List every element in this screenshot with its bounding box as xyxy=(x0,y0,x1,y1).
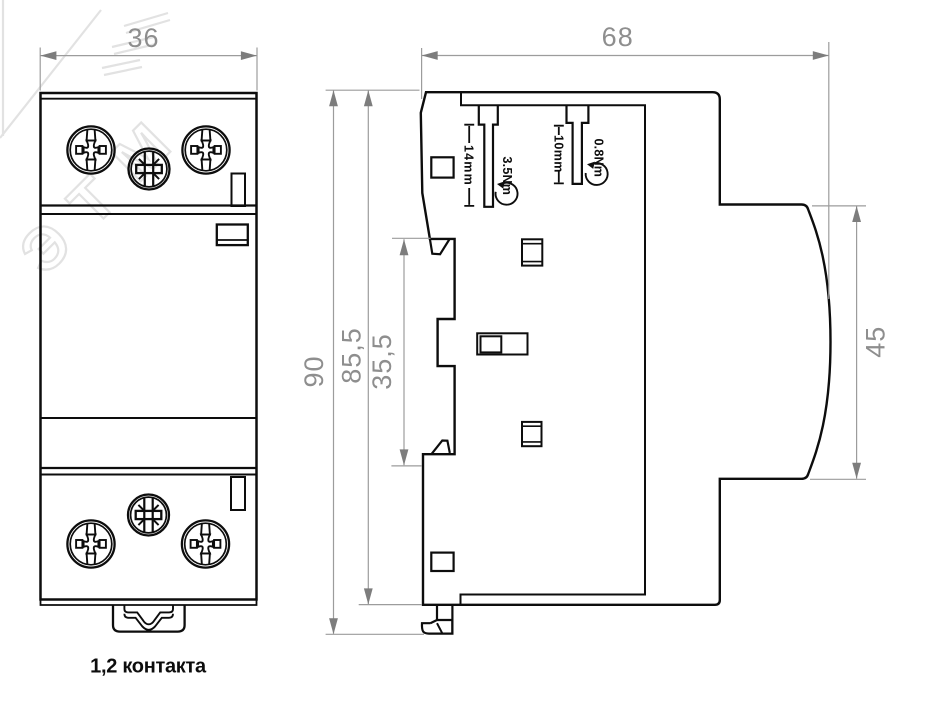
svg-text:45: 45 xyxy=(861,326,891,358)
svg-text:85,5: 85,5 xyxy=(337,327,367,384)
svg-text:3.5Nm: 3.5Nm xyxy=(500,157,514,196)
svg-text:68: 68 xyxy=(602,22,634,52)
svg-text:0.8Nm: 0.8Nm xyxy=(591,139,605,178)
svg-text:1,2 контакта: 1,2 контакта xyxy=(90,656,207,678)
svg-text:36: 36 xyxy=(127,23,159,53)
svg-text:35,5: 35,5 xyxy=(367,333,397,390)
svg-text:90: 90 xyxy=(299,355,329,387)
svg-text:ЭТМ: ЭТМ xyxy=(7,92,201,286)
svg-text:10mm: 10mm xyxy=(552,135,566,173)
svg-text:14mm: 14mm xyxy=(462,145,476,186)
